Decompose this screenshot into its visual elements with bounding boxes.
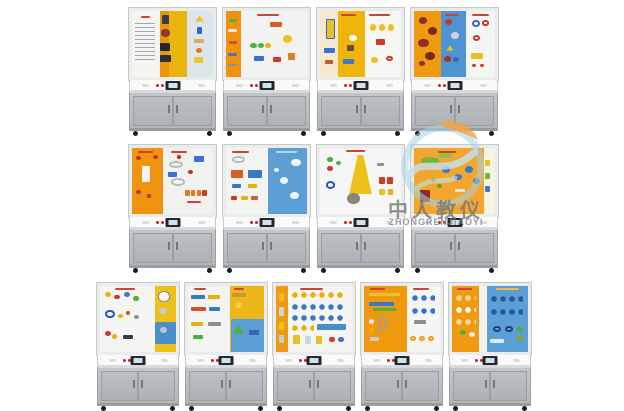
display-items xyxy=(100,286,176,352)
door-handle xyxy=(176,242,178,250)
display-item xyxy=(421,157,439,164)
screen-inner xyxy=(168,220,177,225)
wheel-row xyxy=(411,268,498,273)
display-item xyxy=(457,288,472,290)
display-item xyxy=(169,161,183,168)
display-cabinet xyxy=(129,8,216,136)
screen-inner xyxy=(450,83,459,88)
band-oval-left xyxy=(424,221,431,224)
caster-wheel xyxy=(227,268,232,273)
display-item xyxy=(279,335,284,344)
control-band xyxy=(223,217,310,228)
power-dot xyxy=(255,84,258,87)
display-items xyxy=(364,286,440,352)
door-handle xyxy=(262,105,264,113)
power-dot xyxy=(438,84,441,87)
band-oval-left xyxy=(236,221,243,224)
control-screen xyxy=(131,356,146,365)
control-band xyxy=(129,217,216,228)
display-item xyxy=(387,177,393,184)
display-item xyxy=(254,56,265,61)
display-item xyxy=(482,20,488,25)
control-band xyxy=(129,80,216,91)
display-item xyxy=(370,337,379,341)
display-item xyxy=(473,35,480,41)
display-item xyxy=(326,19,335,39)
display-item xyxy=(249,330,259,335)
display-item xyxy=(324,48,335,53)
band-oval-right xyxy=(386,221,393,224)
display-item xyxy=(158,291,170,302)
door-handle xyxy=(364,242,366,250)
display-item xyxy=(369,302,395,306)
cabinet-door-right xyxy=(402,371,439,401)
display-item xyxy=(505,326,513,333)
display-item xyxy=(485,173,490,179)
display-item xyxy=(279,293,284,302)
cabinet-door-left xyxy=(365,371,402,401)
screen-inner xyxy=(486,358,495,363)
door-handle xyxy=(364,105,366,113)
caster-wheel xyxy=(415,268,420,273)
display-item xyxy=(379,177,385,184)
display-cabinet xyxy=(449,283,531,411)
display-item xyxy=(480,64,484,67)
display-item xyxy=(185,190,189,195)
display-item xyxy=(370,24,376,31)
display-item xyxy=(293,335,301,344)
power-dot xyxy=(438,221,441,224)
display-item xyxy=(232,156,244,163)
display-item xyxy=(290,192,299,199)
power-dot xyxy=(211,359,214,362)
display-item xyxy=(228,64,236,67)
display-case xyxy=(223,8,310,80)
caster-wheel xyxy=(395,131,400,136)
power-dot xyxy=(299,359,302,362)
display-item xyxy=(454,174,462,181)
display-item xyxy=(369,293,401,296)
display-items xyxy=(226,11,307,77)
door-handle xyxy=(450,242,452,250)
display-item xyxy=(329,337,334,342)
wheel-row xyxy=(185,406,267,411)
power-dot xyxy=(344,84,347,87)
display-item xyxy=(472,14,488,16)
base-cabinet xyxy=(411,91,498,131)
display-item xyxy=(208,322,222,326)
display-item xyxy=(155,322,176,344)
base-cabinet xyxy=(317,228,404,268)
screen-inner xyxy=(356,220,365,225)
power-dot xyxy=(387,359,390,362)
display-item xyxy=(349,155,372,195)
display-case xyxy=(129,145,216,217)
power-dot xyxy=(250,84,253,87)
door-handle xyxy=(133,380,135,388)
display-item xyxy=(114,295,119,300)
display-items xyxy=(414,148,495,214)
caster-wheel xyxy=(321,268,326,273)
display-item xyxy=(291,303,346,310)
caster-wheel xyxy=(189,406,194,411)
band-oval-left xyxy=(330,84,337,87)
display-item xyxy=(346,150,365,152)
door-handle xyxy=(485,380,487,388)
display-item xyxy=(442,166,450,173)
display-item xyxy=(171,151,187,153)
display-cabinet xyxy=(411,8,498,136)
display-item xyxy=(280,177,288,184)
display-item xyxy=(188,170,193,174)
control-screen xyxy=(259,218,274,227)
product-photo: 中人教仪 ZHONGRENJIAOYI xyxy=(0,0,624,411)
door-handle xyxy=(229,380,231,388)
caster-wheel xyxy=(395,268,400,273)
display-item xyxy=(248,170,262,177)
control-screen xyxy=(219,356,234,365)
display-item xyxy=(228,53,237,56)
display-item xyxy=(371,57,378,63)
display-item xyxy=(135,23,155,61)
cabinet-door-right xyxy=(455,96,495,126)
display-item xyxy=(347,193,361,204)
display-item xyxy=(160,55,171,62)
display-item xyxy=(490,295,523,303)
screen-inner xyxy=(262,220,271,225)
display-item xyxy=(279,322,284,331)
door-handle xyxy=(262,242,264,250)
display-item xyxy=(425,52,435,60)
display-item xyxy=(133,296,138,301)
band-oval-right xyxy=(161,359,168,362)
display-item xyxy=(136,190,141,194)
display-item xyxy=(469,332,475,337)
control-band xyxy=(411,80,498,91)
power-dot xyxy=(475,359,478,362)
display-item xyxy=(419,61,425,66)
display-item xyxy=(231,319,264,352)
cabinet-door-left xyxy=(227,96,267,126)
display-item xyxy=(270,22,282,28)
display-cabinet xyxy=(411,145,498,273)
display-item xyxy=(283,35,293,43)
display-cabinet xyxy=(97,283,179,411)
display-item xyxy=(231,196,237,201)
display-item xyxy=(338,337,343,342)
display-item xyxy=(336,161,341,165)
display-item xyxy=(194,156,205,162)
display-item xyxy=(161,29,170,36)
caster-wheel xyxy=(207,268,212,273)
display-item xyxy=(386,56,392,61)
door-handle xyxy=(309,380,311,388)
display-item xyxy=(136,156,141,160)
power-dot xyxy=(349,221,352,224)
display-item xyxy=(251,196,257,201)
band-oval-right xyxy=(337,359,344,362)
display-item xyxy=(370,288,385,290)
display-item xyxy=(235,302,242,308)
caster-wheel xyxy=(522,406,527,411)
display-case xyxy=(361,283,443,355)
control-band xyxy=(411,217,498,228)
base-cabinet xyxy=(361,366,443,406)
display-item xyxy=(485,160,490,166)
display-item xyxy=(105,331,111,336)
display-item xyxy=(341,14,356,16)
caster-wheel xyxy=(133,131,138,136)
control-screen xyxy=(483,356,498,365)
power-dot xyxy=(161,221,164,224)
band-oval-right xyxy=(292,84,299,87)
band-oval-left xyxy=(142,84,149,87)
power-dot xyxy=(349,84,352,87)
display-item xyxy=(460,330,467,336)
display-item xyxy=(194,57,203,63)
display-item xyxy=(209,307,220,311)
door-handle xyxy=(168,242,170,250)
control-band xyxy=(449,355,531,366)
power-dot xyxy=(156,221,159,224)
display-item xyxy=(258,43,264,48)
display-items xyxy=(132,11,213,77)
control-screen xyxy=(395,356,410,365)
display-item xyxy=(191,190,195,195)
display-item xyxy=(142,166,150,182)
display-items xyxy=(132,148,213,214)
display-item xyxy=(437,184,442,188)
display-item xyxy=(196,48,202,53)
display-item xyxy=(273,57,281,62)
display-items xyxy=(276,286,352,352)
display-item xyxy=(291,314,346,321)
cabinet-door-left xyxy=(415,96,455,126)
display-item xyxy=(418,39,429,48)
cabinet-door-left xyxy=(277,371,314,401)
display-item xyxy=(124,292,130,297)
power-dot xyxy=(443,84,446,87)
display-item xyxy=(453,57,459,62)
display-item xyxy=(257,14,280,17)
control-screen xyxy=(307,356,322,365)
band-oval-left xyxy=(109,359,116,362)
display-item xyxy=(134,315,139,319)
display-case xyxy=(223,145,310,217)
display-item xyxy=(241,196,247,201)
display-case xyxy=(317,145,404,217)
display-item xyxy=(379,24,385,31)
display-item xyxy=(369,14,390,16)
display-item xyxy=(445,19,452,25)
display-item xyxy=(428,336,434,341)
wheel-row xyxy=(97,406,179,411)
caster-wheel xyxy=(207,131,212,136)
display-item xyxy=(455,306,476,313)
cabinet-door-right xyxy=(267,96,307,126)
display-item xyxy=(229,19,237,22)
display-item xyxy=(112,334,117,339)
caster-wheel xyxy=(434,406,439,411)
wheel-row xyxy=(129,131,216,136)
display-item xyxy=(162,15,169,24)
wheel-row xyxy=(361,406,443,411)
screen-inner xyxy=(398,358,407,363)
control-screen xyxy=(259,81,274,90)
display-item xyxy=(232,184,241,189)
cabinet-door-right xyxy=(267,233,307,263)
band-oval-left xyxy=(330,221,337,224)
display-item xyxy=(197,190,201,195)
cabinet-door-right xyxy=(138,371,175,401)
display-item xyxy=(446,45,453,50)
screen-inner xyxy=(222,358,231,363)
caster-wheel xyxy=(258,406,263,411)
display-item xyxy=(208,295,220,299)
wheel-row xyxy=(223,131,310,136)
display-item xyxy=(191,307,206,311)
band-oval-right xyxy=(480,221,487,224)
display-item xyxy=(232,293,246,297)
wheel-row xyxy=(449,406,531,411)
door-handle xyxy=(176,105,178,113)
cabinet-door-left xyxy=(133,233,173,263)
display-item xyxy=(413,288,430,290)
caster-wheel xyxy=(301,268,306,273)
door-handle xyxy=(270,242,272,250)
display-item xyxy=(490,339,504,343)
base-cabinet xyxy=(129,228,216,268)
display-item xyxy=(274,168,279,172)
power-dot xyxy=(250,221,253,224)
band-oval-left xyxy=(197,359,204,362)
control-band xyxy=(361,355,443,366)
cabinet-door-right xyxy=(226,371,263,401)
display-case xyxy=(273,283,355,355)
display-item xyxy=(431,178,436,182)
band-oval-left xyxy=(461,359,468,362)
display-item xyxy=(455,294,476,301)
display-item xyxy=(465,166,473,173)
band-oval-left xyxy=(142,221,149,224)
cabinet-door-right xyxy=(361,233,401,263)
caster-wheel xyxy=(277,406,282,411)
display-item xyxy=(369,328,374,333)
display-case xyxy=(317,8,404,80)
door-handle xyxy=(317,380,319,388)
door-handle xyxy=(141,380,143,388)
display-item xyxy=(232,151,248,153)
caster-wheel xyxy=(227,131,232,136)
control-band xyxy=(185,355,267,366)
display-item xyxy=(471,53,483,59)
control-screen xyxy=(353,218,368,227)
display-item xyxy=(377,163,384,167)
caster-wheel xyxy=(170,406,175,411)
display-item xyxy=(160,327,167,333)
display-item xyxy=(291,324,314,331)
display-case xyxy=(97,283,179,355)
band-oval-left xyxy=(424,84,431,87)
display-item xyxy=(327,157,333,162)
display-items xyxy=(188,286,264,352)
display-item xyxy=(202,190,206,195)
display-cabinet xyxy=(185,283,267,411)
display-item xyxy=(279,307,284,316)
door-handle xyxy=(397,380,399,388)
caster-wheel xyxy=(415,131,420,136)
display-item xyxy=(451,32,459,39)
display-item xyxy=(168,172,177,177)
door-handle xyxy=(405,380,407,388)
display-item xyxy=(138,151,153,153)
base-cabinet xyxy=(185,366,267,406)
display-items xyxy=(320,148,401,214)
display-item xyxy=(349,35,357,42)
display-item xyxy=(411,294,435,302)
control-band xyxy=(273,355,355,366)
screen-inner xyxy=(134,358,143,363)
cabinet-door-left xyxy=(415,233,455,263)
display-cabinet xyxy=(223,145,310,273)
display-item xyxy=(411,307,435,315)
cabinet-door-right xyxy=(361,96,401,126)
band-oval-right xyxy=(513,359,520,362)
door-handle xyxy=(450,105,452,113)
display-item xyxy=(305,336,311,344)
display-item xyxy=(288,53,295,60)
display-cabinet xyxy=(273,283,355,411)
display-item xyxy=(229,41,237,44)
display-item xyxy=(376,39,385,45)
display-item xyxy=(105,310,115,319)
screen-inner xyxy=(450,220,459,225)
cabinet-door-left xyxy=(453,371,490,401)
display-item xyxy=(343,59,354,64)
cabinet-door-left xyxy=(189,371,226,401)
display-item xyxy=(171,178,185,185)
door-handle xyxy=(168,105,170,113)
door-handle xyxy=(493,380,495,388)
band-oval-left xyxy=(373,359,380,362)
display-item xyxy=(369,319,374,324)
display-item xyxy=(388,189,393,195)
display-cabinet xyxy=(223,8,310,136)
display-cabinet xyxy=(361,283,443,411)
base-cabinet xyxy=(223,91,310,131)
caster-wheel xyxy=(453,406,458,411)
display-item xyxy=(316,336,322,344)
display-item xyxy=(153,155,158,159)
display-item xyxy=(455,318,476,325)
display-items xyxy=(320,11,401,77)
display-item xyxy=(473,178,480,184)
display-item xyxy=(493,326,501,333)
control-screen xyxy=(165,81,180,90)
display-item xyxy=(291,291,346,298)
display-item xyxy=(105,292,111,297)
display-item xyxy=(317,324,346,330)
cabinet-door-left xyxy=(321,233,361,263)
band-oval-right xyxy=(249,359,256,362)
display-item xyxy=(438,153,453,158)
door-handle xyxy=(356,105,358,113)
display-item xyxy=(419,17,427,24)
display-case xyxy=(185,283,267,355)
caster-wheel xyxy=(321,131,326,136)
display-item xyxy=(197,27,203,34)
band-oval-left xyxy=(236,84,243,87)
